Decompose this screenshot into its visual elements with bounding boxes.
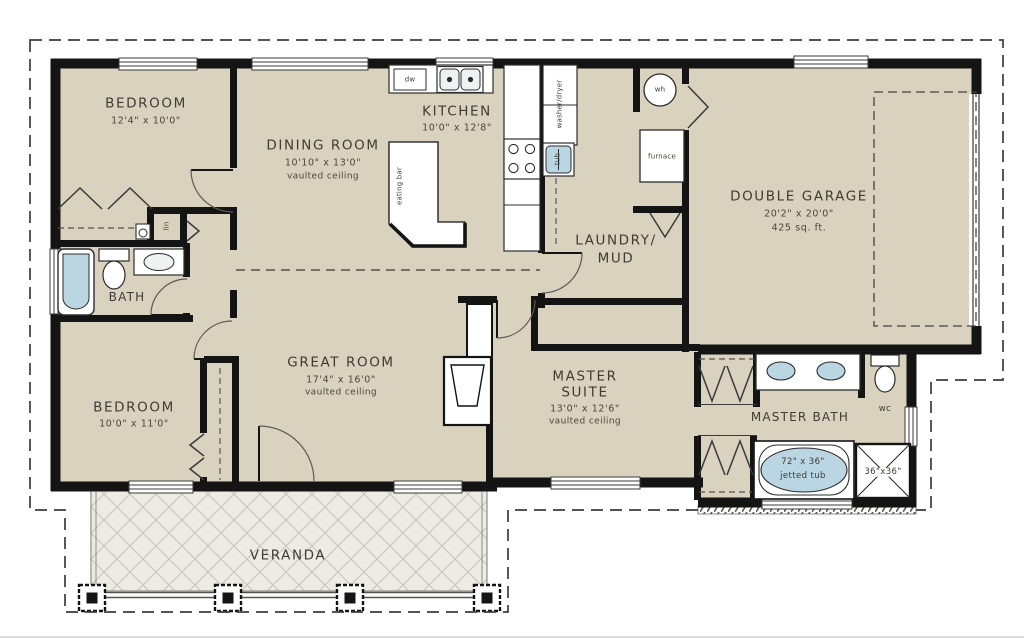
laundry-tub-label: tub — [555, 153, 562, 165]
dining-room-dims: 10'10" x 13'0" — [285, 158, 361, 168]
garage-label: DOUBLE GARAGE — [730, 190, 868, 204]
great-room-dims: 17'4" x 16'0" — [306, 375, 376, 385]
garage-area: 425 sq. ft. — [772, 223, 827, 233]
jetted-tub-label: jetted tub — [780, 472, 826, 481]
jetted-tub-size-label: 72" x 36" — [781, 458, 825, 467]
wc-label: wc — [879, 405, 891, 414]
dining-room-label: DINING ROOM — [266, 139, 379, 153]
bathtub-icon — [58, 249, 94, 315]
kitchen-dims: 10'0" x 12'8" — [422, 123, 492, 133]
garage-dims: 20'2" x 20'0" — [764, 209, 834, 219]
veranda-label: VERANDA — [250, 549, 327, 563]
laundry-label: LAUNDRY/ — [575, 234, 657, 248]
master-suite-label: MASTER — [552, 370, 617, 384]
shower-size-label: 36"x36" — [863, 468, 902, 477]
vanity-sink-icon — [134, 249, 184, 275]
furnace-label: furnace — [648, 154, 676, 161]
bedroom1-dims: 12'4" x 10'0" — [111, 116, 181, 126]
floor-plan-page: BEDROOM 12'4" x 10'0" DINING ROOM 10'10"… — [0, 0, 1024, 638]
bedroom2-dims: 10'0" x 11'0" — [99, 419, 169, 429]
washer-dryer-label: washer/dryer — [557, 80, 564, 129]
bedroom1-label: BEDROOM — [105, 97, 187, 111]
master-vanity-icon — [756, 354, 860, 390]
stove-icon — [504, 139, 540, 179]
water-heater-label: wh — [655, 87, 666, 94]
great-room-note: vaulted ceiling — [305, 389, 377, 398]
master-suite-note: vaulted ceiling — [549, 418, 621, 427]
laundry-label-2: MUD — [598, 252, 635, 266]
master-suite-dims: 13'0" x 12'6" — [550, 404, 620, 414]
bath-label: BATH — [109, 291, 146, 303]
kitchen-sink-icon — [437, 67, 483, 93]
master-suite-label-2: SUITE — [561, 386, 608, 400]
dining-room-note: vaulted ceiling — [287, 173, 359, 182]
dishwasher-label: dw — [405, 77, 416, 84]
kitchen-label: KITCHEN — [422, 105, 492, 119]
master-bath-label: MASTER BATH — [751, 411, 849, 423]
veranda-floor — [91, 490, 489, 598]
bedroom2-label: BEDROOM — [93, 401, 175, 415]
great-room-label: GREAT ROOM — [287, 356, 394, 370]
eating-bar-label: eating bar — [397, 167, 404, 205]
linen-label: lin — [164, 222, 171, 231]
